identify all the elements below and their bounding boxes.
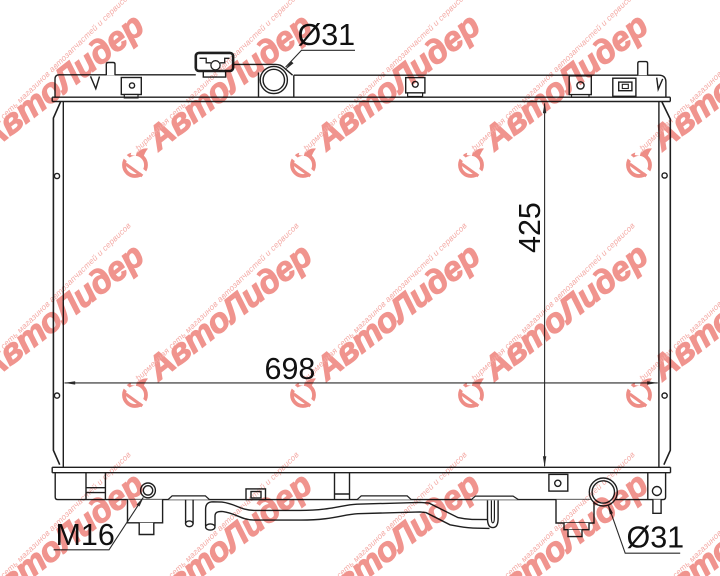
svg-text:Ø31: Ø31 [627,521,685,555]
svg-text:M16: M16 [56,518,115,552]
svg-text:425: 425 [513,202,547,253]
svg-text:698: 698 [265,352,316,386]
svg-text:Ø31: Ø31 [298,18,356,52]
